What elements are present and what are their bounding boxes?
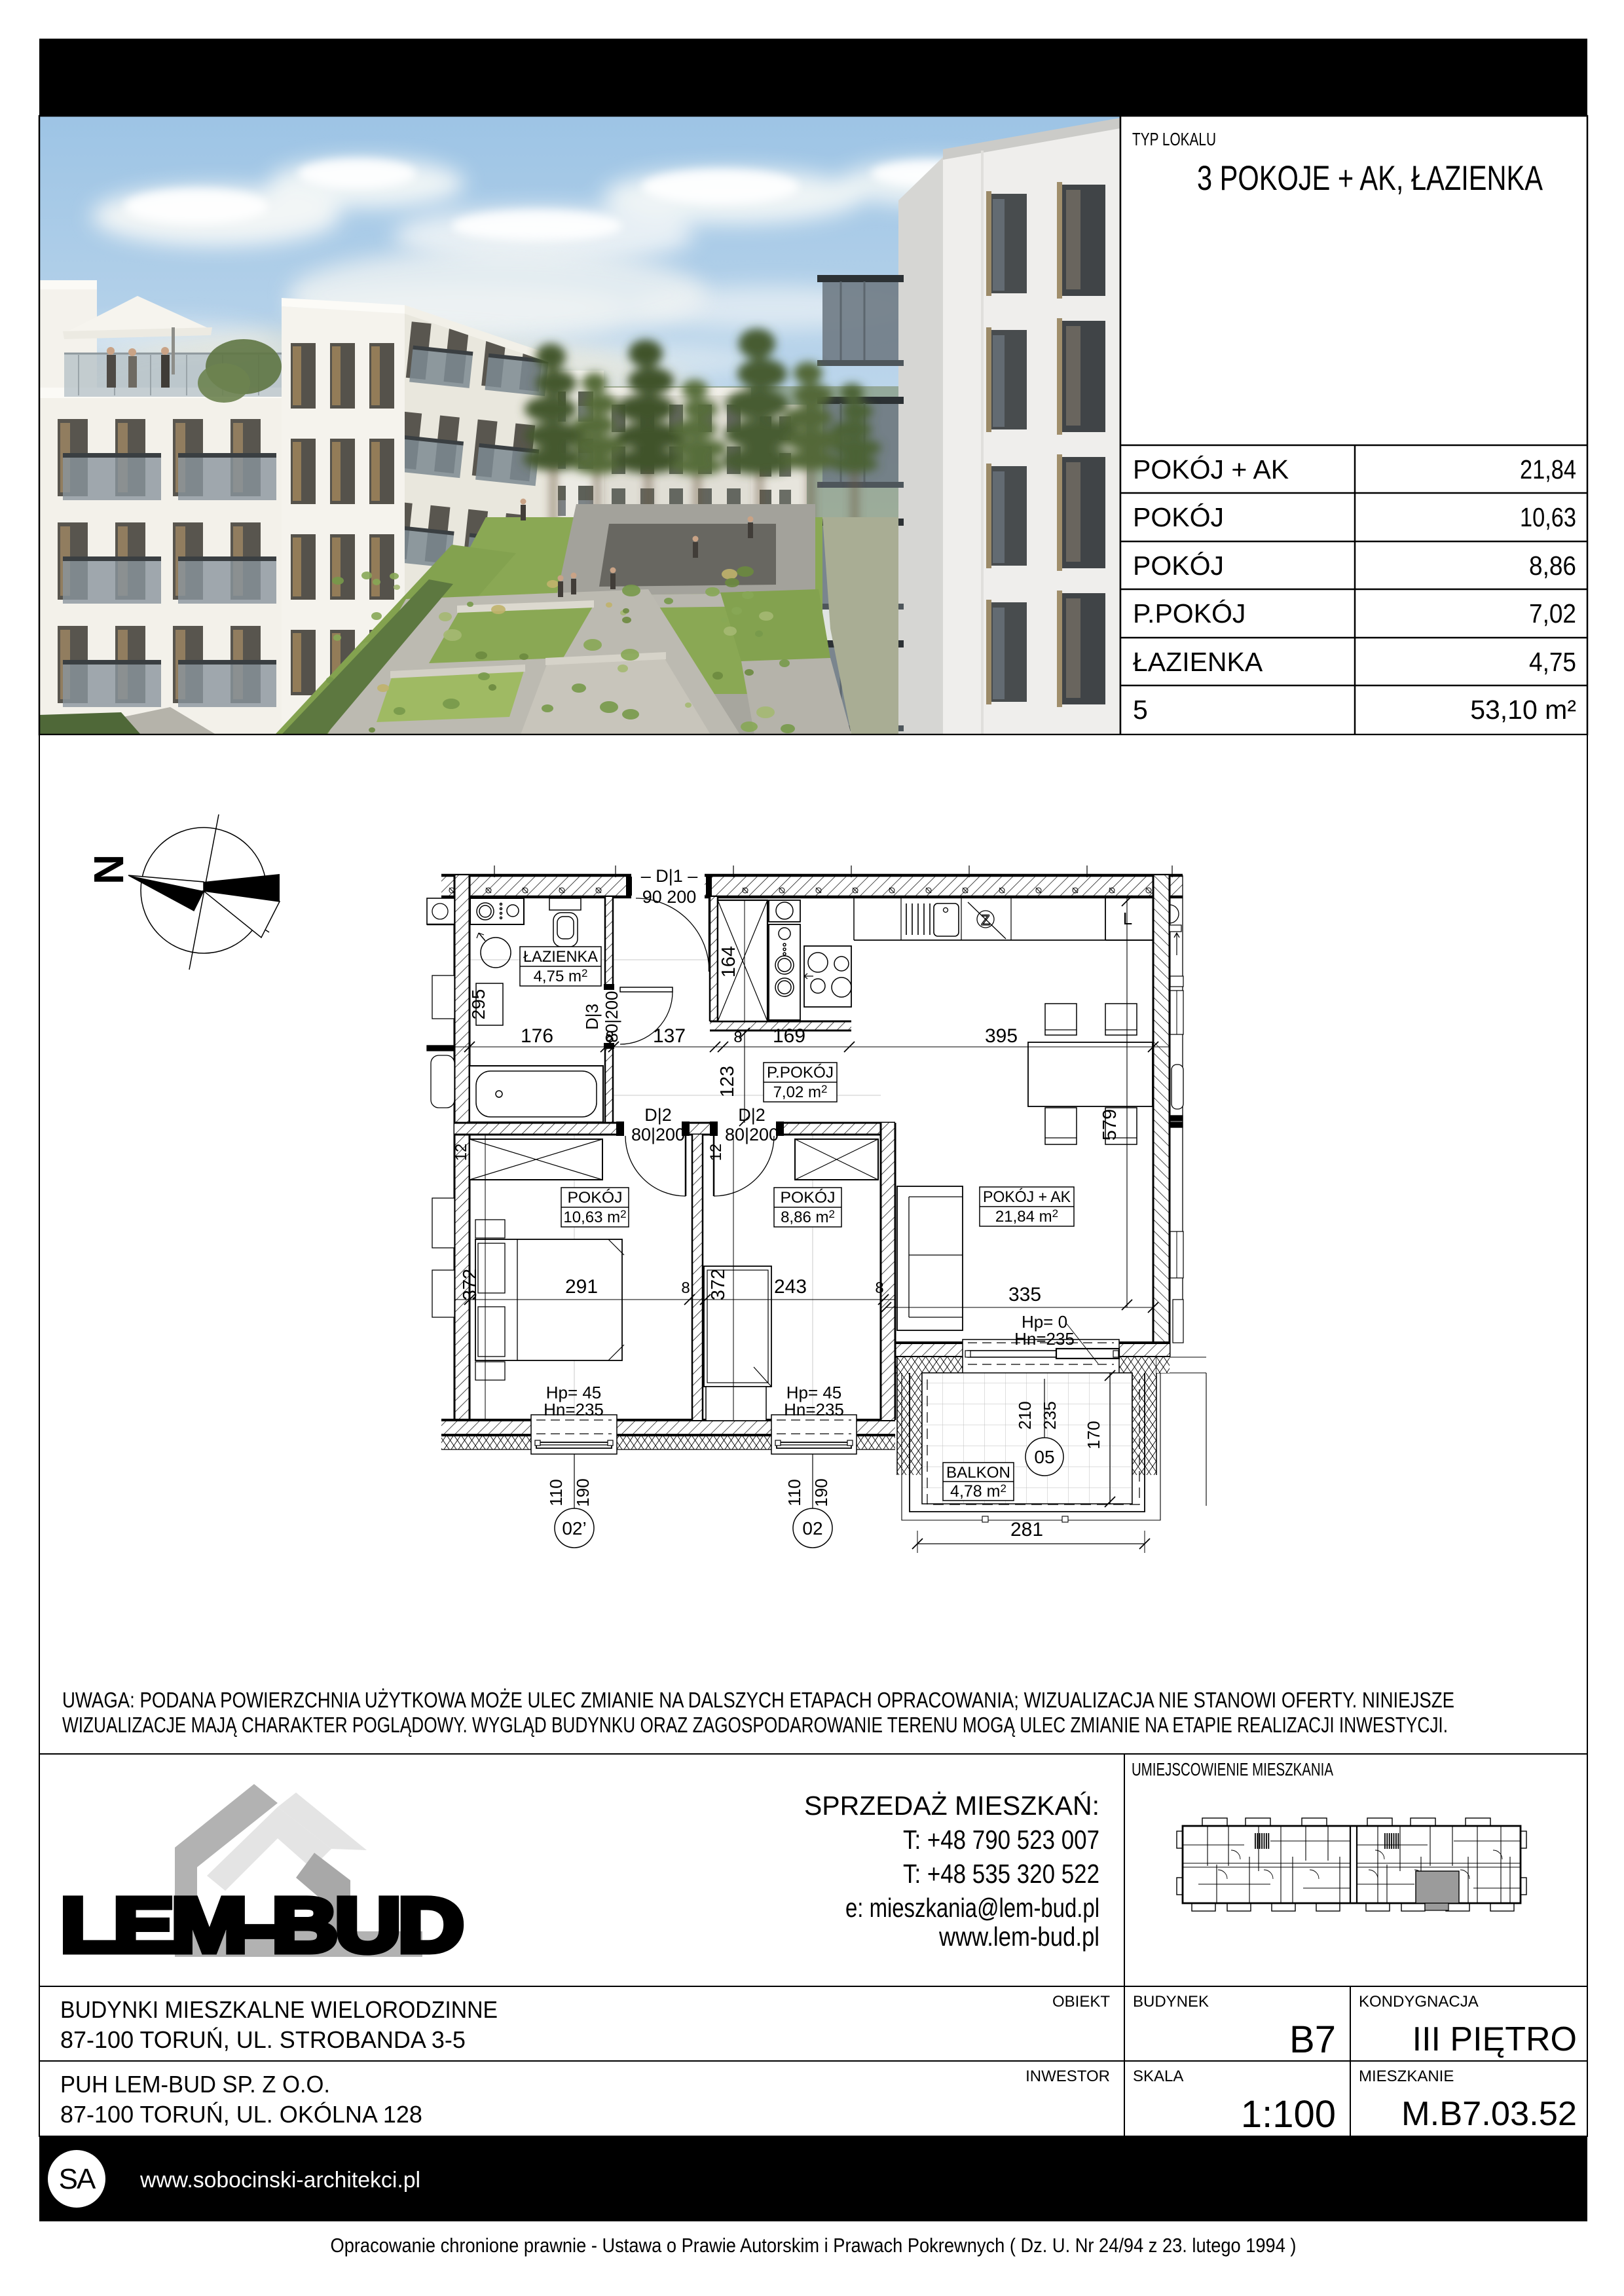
svg-text:8,86 m2: 8,86 m2: [781, 1208, 835, 1226]
svg-text:SKALA: SKALA: [1133, 2068, 1183, 2085]
svg-text:110: 110: [546, 1479, 566, 1506]
svg-text:D|3: D|3: [582, 1004, 602, 1030]
svg-text:235: 235: [1040, 1401, 1060, 1429]
svg-text:M.B7.03.52: M.B7.03.52: [1401, 2095, 1577, 2133]
svg-text:02: 02: [802, 1518, 822, 1539]
svg-text:BALKON: BALKON: [946, 1464, 1010, 1482]
svg-text:335: 335: [1008, 1284, 1041, 1305]
svg-text:– D|1 –: – D|1 –: [641, 866, 698, 886]
svg-text:B7: B7: [1289, 2018, 1336, 2061]
svg-text:OBIEKT: OBIEKT: [1052, 1993, 1110, 2011]
svg-text:395: 395: [985, 1025, 1018, 1047]
svg-text:12: 12: [707, 1144, 725, 1161]
svg-text:190: 190: [811, 1478, 831, 1506]
svg-text:8: 8: [605, 1029, 614, 1046]
svg-text:4,75 m2: 4,75 m2: [534, 967, 588, 985]
svg-text:8,86: 8,86: [1529, 551, 1576, 581]
svg-text:176: 176: [521, 1025, 553, 1047]
svg-text:Hn=235: Hn=235: [1014, 1329, 1075, 1349]
svg-text:www.sobocinski-architekci.pl: www.sobocinski-architekci.pl: [139, 2168, 420, 2193]
svg-text:7,02 m2: 7,02 m2: [773, 1083, 828, 1101]
svg-text:291: 291: [565, 1276, 598, 1298]
svg-text:4,75: 4,75: [1529, 647, 1576, 677]
svg-text:POKÓJ: POKÓJ: [568, 1189, 623, 1207]
svg-text:164: 164: [718, 946, 739, 977]
svg-text:137: 137: [653, 1025, 686, 1047]
svg-text:281: 281: [1010, 1519, 1043, 1540]
svg-text:3 POKOJE + AK, ŁAZIENKA: 3 POKOJE + AK, ŁAZIENKA: [1197, 159, 1543, 198]
svg-text:www.lem-bud.pl: www.lem-bud.pl: [938, 1922, 1099, 1952]
svg-text:295: 295: [468, 989, 489, 1020]
svg-text:D|2: D|2: [644, 1105, 672, 1125]
svg-text:90 200: 90 200: [642, 887, 697, 907]
svg-text:TYP LOKALU: TYP LOKALU: [1132, 129, 1216, 149]
svg-text:WIZUALIZACJE MAJĄ CHARAKTER PO: WIZUALIZACJE MAJĄ CHARAKTER POGLĄDOWY. W…: [62, 1713, 1448, 1737]
svg-text:80|200: 80|200: [725, 1125, 779, 1144]
svg-text:80|200: 80|200: [631, 1125, 685, 1144]
svg-text:KONDYGNACJA: KONDYGNACJA: [1359, 1993, 1479, 2011]
svg-text:PUH LEM-BUD SP. Z O.O.: PUH LEM-BUD SP. Z O.O.: [60, 2071, 330, 2098]
svg-text:1:100: 1:100: [1241, 2093, 1336, 2136]
svg-text:5: 5: [1133, 695, 1148, 725]
svg-text:Z: Z: [981, 912, 989, 928]
svg-text:POKÓJ: POKÓJ: [1133, 551, 1224, 581]
svg-text:UWAGA: PODANA POWIERZCHNIA UŻY: UWAGA: PODANA POWIERZCHNIA UŻYTKOWA MOŻE…: [62, 1688, 1454, 1712]
svg-text:110: 110: [784, 1479, 804, 1506]
svg-text:21,84 m2: 21,84 m2: [995, 1207, 1058, 1226]
svg-text:10,63: 10,63: [1520, 502, 1576, 532]
svg-text:8: 8: [875, 1279, 883, 1297]
svg-text:LEM-BUD: LEM-BUD: [60, 1882, 461, 1969]
svg-text:INWESTOR: INWESTOR: [1025, 2068, 1110, 2085]
svg-text:Hn=235: Hn=235: [784, 1400, 844, 1419]
svg-text:Opracowanie chronione prawnie: Opracowanie chronione prawnie - Ustawa o…: [331, 2234, 1297, 2257]
svg-text:T: +48 790 523 007: T: +48 790 523 007: [903, 1825, 1099, 1855]
svg-text:87-100 TORUŃ, UL. STROBANDA 3-: 87-100 TORUŃ, UL. STROBANDA 3-5: [60, 2026, 466, 2053]
svg-text:579: 579: [1099, 1109, 1120, 1140]
svg-text:170: 170: [1084, 1421, 1103, 1449]
svg-text:P.POKÓJ: P.POKÓJ: [767, 1064, 834, 1082]
svg-text:POKÓJ + AK: POKÓJ + AK: [1133, 454, 1289, 484]
svg-text:SPRZEDAŻ MIESZKAŃ:: SPRZEDAŻ MIESZKAŃ:: [804, 1791, 1099, 1821]
svg-text:ŁAZIENKA: ŁAZIENKA: [1133, 647, 1263, 677]
svg-text:UMIEJSCOWIENIE MIESZKANIA: UMIEJSCOWIENIE MIESZKANIA: [1132, 1759, 1333, 1779]
svg-text:POKÓJ + AK: POKÓJ + AK: [983, 1188, 1071, 1206]
svg-text:21,84: 21,84: [1520, 454, 1576, 484]
svg-text:SA: SA: [59, 2163, 96, 2195]
svg-text:05: 05: [1034, 1447, 1054, 1467]
svg-text:190: 190: [573, 1478, 593, 1506]
svg-text:ŁAZIENKA: ŁAZIENKA: [523, 948, 598, 966]
svg-text:BUDYNEK: BUDYNEK: [1133, 1993, 1209, 2011]
svg-text:MIESZKANIE: MIESZKANIE: [1359, 2068, 1454, 2085]
svg-text:372: 372: [708, 1269, 729, 1300]
svg-text:123: 123: [717, 1066, 738, 1097]
svg-text:8: 8: [681, 1279, 690, 1297]
svg-text:53,10 m²: 53,10 m²: [1470, 695, 1576, 725]
svg-text:e: mieszkania@lem-bud.pl: e: mieszkania@lem-bud.pl: [845, 1893, 1099, 1923]
svg-text:243: 243: [774, 1276, 807, 1298]
svg-text:4,78 m2: 4,78 m2: [950, 1482, 1006, 1501]
svg-text:P.POKÓJ: P.POKÓJ: [1133, 598, 1246, 629]
svg-text:Hn=235: Hn=235: [544, 1400, 604, 1419]
svg-text:III PIĘTRO: III PIĘTRO: [1412, 2020, 1577, 2058]
svg-text:BUDYNKI MIESZKALNE WIELORODZIN: BUDYNKI MIESZKALNE WIELORODZINNE: [60, 1996, 498, 2023]
svg-text:12: 12: [452, 1144, 470, 1161]
svg-text:87-100 TORUŃ, UL. OKÓLNA 128: 87-100 TORUŃ, UL. OKÓLNA 128: [60, 2101, 422, 2128]
svg-text:02’: 02’: [562, 1518, 586, 1539]
svg-text:10,63 m2: 10,63 m2: [563, 1208, 626, 1226]
svg-text:169: 169: [773, 1025, 805, 1047]
svg-text:N: N: [85, 854, 132, 884]
svg-text:POKÓJ: POKÓJ: [1133, 502, 1224, 532]
svg-text:L: L: [1123, 909, 1132, 928]
svg-text:372: 372: [460, 1269, 481, 1300]
svg-text:POKÓJ: POKÓJ: [781, 1189, 836, 1207]
svg-text:7,02: 7,02: [1529, 598, 1576, 629]
svg-text:210: 210: [1015, 1401, 1035, 1429]
svg-text:D|2: D|2: [738, 1105, 766, 1125]
svg-text:T: +48 535 320 522: T: +48 535 320 522: [903, 1859, 1099, 1889]
